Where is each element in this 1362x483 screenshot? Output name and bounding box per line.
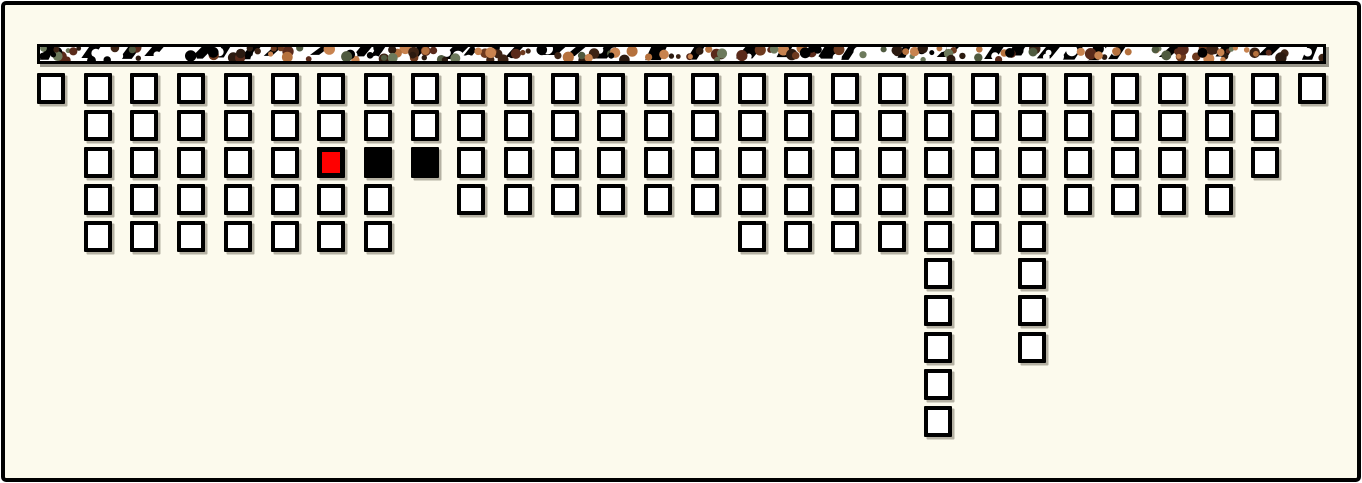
plot-cell[interactable] <box>924 369 952 400</box>
plot-cell[interactable] <box>130 184 158 215</box>
plot-cell[interactable] <box>1111 110 1139 141</box>
plot-cell[interactable] <box>224 110 252 141</box>
plot-cell[interactable] <box>177 73 205 104</box>
plot-cell[interactable] <box>1018 184 1046 215</box>
plot-cell[interactable] <box>924 147 952 178</box>
plot-cell[interactable] <box>644 184 672 215</box>
plot-cell[interactable] <box>1018 258 1046 289</box>
plot-cell[interactable] <box>738 184 766 215</box>
plot-cell[interactable] <box>971 110 999 141</box>
plot-cell[interactable] <box>1064 110 1092 141</box>
plot-cell[interactable] <box>84 221 112 252</box>
plot-cell[interactable] <box>457 147 485 178</box>
plot-cell[interactable] <box>504 73 532 104</box>
plot-cell[interactable] <box>1205 184 1233 215</box>
plot-cell[interactable] <box>597 110 625 141</box>
plot-cell[interactable] <box>644 110 672 141</box>
plot-cell[interactable] <box>738 147 766 178</box>
plot-cell[interactable] <box>551 184 579 215</box>
plot-cell[interactable] <box>878 184 906 215</box>
plot-cell[interactable] <box>784 110 812 141</box>
plot-cell[interactable] <box>691 73 719 104</box>
plot-cell[interactable] <box>597 147 625 178</box>
plot-cell[interactable] <box>971 73 999 104</box>
plot-cell[interactable] <box>1111 184 1139 215</box>
plot-cell[interactable] <box>504 147 532 178</box>
plot-cell[interactable] <box>1158 184 1186 215</box>
plot-cell[interactable] <box>738 110 766 141</box>
plot-cell[interactable] <box>924 221 952 252</box>
plot-cell[interactable] <box>317 184 345 215</box>
plot-cell[interactable] <box>878 110 906 141</box>
plot-cell[interactable] <box>504 110 532 141</box>
plot-cell[interactable] <box>784 184 812 215</box>
plot-cell[interactable] <box>971 147 999 178</box>
plot-cell[interactable] <box>1018 110 1046 141</box>
plot-cell[interactable] <box>1064 147 1092 178</box>
plot-cell[interactable] <box>364 147 392 178</box>
plot-cell[interactable] <box>457 110 485 141</box>
plot-cell[interactable] <box>177 221 205 252</box>
plot-cell[interactable] <box>84 73 112 104</box>
plot-cell[interactable] <box>738 221 766 252</box>
plot-cell[interactable] <box>457 73 485 104</box>
plot-cell[interactable] <box>644 147 672 178</box>
plot-cell[interactable] <box>924 258 952 289</box>
plot-cell[interactable] <box>224 147 252 178</box>
plot-cell[interactable] <box>738 73 766 104</box>
plot-cell[interactable] <box>84 184 112 215</box>
plot-cell[interactable] <box>317 147 345 178</box>
plot-cell[interactable] <box>457 184 485 215</box>
plot-cell[interactable] <box>84 147 112 178</box>
plot-cell[interactable] <box>1251 110 1279 141</box>
plot-cell[interactable] <box>317 110 345 141</box>
plot-cell[interactable] <box>1018 332 1046 363</box>
plot-cell[interactable] <box>924 406 952 437</box>
plot-cell[interactable] <box>784 147 812 178</box>
plot-cell[interactable] <box>317 73 345 104</box>
plot-cell[interactable] <box>1298 73 1326 104</box>
plot-cell[interactable] <box>130 73 158 104</box>
plot-cell[interactable] <box>177 147 205 178</box>
plot-cell[interactable] <box>924 73 952 104</box>
plot-cell[interactable] <box>597 184 625 215</box>
plot-cell[interactable] <box>1111 73 1139 104</box>
plot-cell[interactable] <box>924 295 952 326</box>
plot-cell[interactable] <box>831 110 859 141</box>
plot-cell[interactable] <box>37 73 65 104</box>
plot-cell[interactable] <box>271 110 299 141</box>
plot-cell[interactable] <box>924 332 952 363</box>
plot-cell[interactable] <box>878 73 906 104</box>
plot-cell[interactable] <box>551 73 579 104</box>
plot-cell[interactable] <box>411 147 439 178</box>
plot-cell[interactable] <box>1018 295 1046 326</box>
plot-cell[interactable] <box>691 110 719 141</box>
plot-cell[interactable] <box>224 221 252 252</box>
plot-cell[interactable] <box>411 110 439 141</box>
plot-cell[interactable] <box>1064 73 1092 104</box>
plot-cell[interactable] <box>1205 73 1233 104</box>
plot-cell[interactable] <box>130 147 158 178</box>
plot-cell[interactable] <box>784 221 812 252</box>
plot-cell[interactable] <box>130 110 158 141</box>
plot-cell[interactable] <box>1111 147 1139 178</box>
plot-cell[interactable] <box>1205 110 1233 141</box>
plot-cell[interactable] <box>691 184 719 215</box>
plot-cell[interactable] <box>597 73 625 104</box>
plot-cell[interactable] <box>551 147 579 178</box>
plot-cell[interactable] <box>271 147 299 178</box>
plot-cell[interactable] <box>971 184 999 215</box>
plot-cell[interactable] <box>878 147 906 178</box>
plot-cell[interactable] <box>831 147 859 178</box>
plot-cell[interactable] <box>224 184 252 215</box>
plot-cell[interactable] <box>1018 221 1046 252</box>
plot-cell[interactable] <box>1251 73 1279 104</box>
plot-cell[interactable] <box>971 221 999 252</box>
plot-cell[interactable] <box>224 73 252 104</box>
plot-cell[interactable] <box>84 110 112 141</box>
plot-cell[interactable] <box>1064 184 1092 215</box>
plot-cell[interactable] <box>177 184 205 215</box>
plot-cell[interactable] <box>1205 147 1233 178</box>
plot-cell[interactable] <box>878 221 906 252</box>
plot-cell[interactable] <box>644 73 672 104</box>
plot-cell[interactable] <box>1158 110 1186 141</box>
plot-cell[interactable] <box>924 110 952 141</box>
plot-cell[interactable] <box>364 110 392 141</box>
plot-cell[interactable] <box>831 184 859 215</box>
plot-cell[interactable] <box>271 221 299 252</box>
plot-cell[interactable] <box>1251 147 1279 178</box>
plot-cell[interactable] <box>130 221 158 252</box>
plot-cell[interactable] <box>177 110 205 141</box>
plot-cell[interactable] <box>691 147 719 178</box>
plot-cell[interactable] <box>1018 147 1046 178</box>
plot-cell[interactable] <box>271 184 299 215</box>
plot-cell[interactable] <box>504 184 532 215</box>
plot-cell[interactable] <box>831 221 859 252</box>
plot-cell[interactable] <box>551 110 579 141</box>
plot-cell[interactable] <box>317 221 345 252</box>
plot-cell[interactable] <box>1158 147 1186 178</box>
plot-cell[interactable] <box>411 73 439 104</box>
plot-cell[interactable] <box>924 184 952 215</box>
plot-cell[interactable] <box>1018 73 1046 104</box>
plot-grid <box>0 0 1362 483</box>
plot-cell[interactable] <box>364 73 392 104</box>
plot-cell[interactable] <box>1158 73 1186 104</box>
plot-cell[interactable] <box>271 73 299 104</box>
plot-cell[interactable] <box>364 221 392 252</box>
plot-cell[interactable] <box>831 73 859 104</box>
plot-cell[interactable] <box>364 184 392 215</box>
plot-cell[interactable] <box>784 73 812 104</box>
